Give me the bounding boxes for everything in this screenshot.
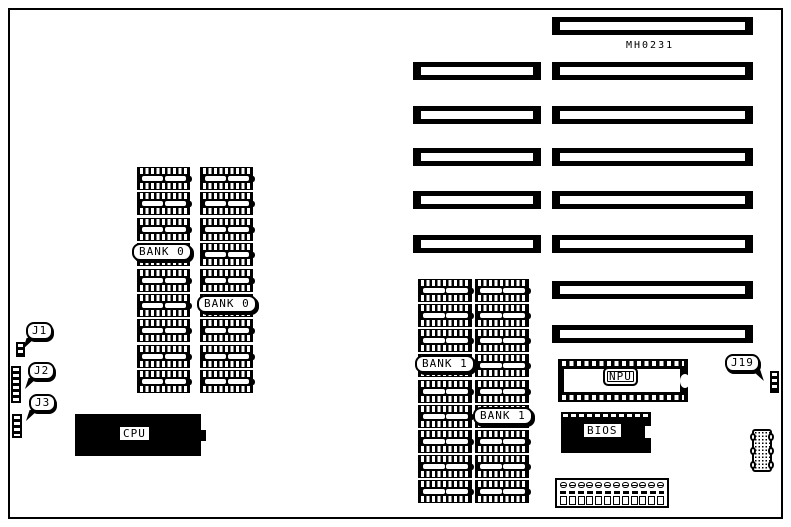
power-pin: [648, 496, 655, 505]
bios-label: BIOS: [583, 423, 622, 438]
dram-chip: [418, 480, 472, 503]
power-pin: [631, 496, 638, 505]
chip-label-bar: [228, 379, 249, 384]
chip-pins: [140, 346, 187, 352]
npu-socket-notch: [680, 374, 690, 388]
chip-label-bar: [205, 278, 226, 283]
chip-notch: [470, 389, 474, 395]
chip-label-bar: [503, 313, 525, 318]
chip-label-bar: [423, 439, 445, 444]
dram-chip: [200, 319, 253, 342]
chip-notch: [527, 288, 531, 294]
chip-label-bar: [503, 338, 525, 343]
power-pin: [586, 482, 593, 488]
chip-label-bar: [423, 414, 445, 419]
chip-notch: [470, 489, 474, 495]
jumper-label-j3: J3: [35, 396, 50, 409]
chip-label-bar: [228, 328, 249, 333]
chip-pins: [140, 310, 187, 316]
power-pin-row-top: [560, 482, 664, 488]
dram-chip: [137, 345, 190, 368]
dram-chip: [200, 167, 253, 190]
chip-pins: [478, 456, 526, 462]
chip-pins: [421, 305, 469, 311]
chip-notch: [188, 303, 192, 309]
power-pin: [569, 482, 576, 488]
cpu-pin1-tab: [200, 430, 206, 441]
dram-chip: [137, 319, 190, 342]
chip-pins: [140, 183, 187, 189]
chip-label-bar: [205, 227, 226, 232]
chip-label-bar: [205, 328, 226, 333]
isa-slot: [552, 281, 753, 299]
isa-slot: [413, 235, 541, 253]
chip-notch: [251, 354, 255, 360]
chip-pins: [203, 335, 250, 341]
chip-pins: [478, 496, 526, 502]
memory-bank0-column-1: [137, 167, 190, 393]
power-pin: [613, 482, 620, 488]
chip-label-bar: [480, 489, 502, 494]
dram-chip: [475, 354, 529, 377]
chip-label-bar: [503, 363, 525, 368]
chip-label-bar: [503, 389, 525, 394]
jumper-block-j2: [11, 366, 21, 403]
cpu-block: CPU: [75, 414, 201, 456]
chip-pins: [478, 431, 526, 437]
dram-chip: [475, 380, 529, 403]
chip-label-bar: [142, 354, 163, 359]
chip-label-bar: [446, 338, 468, 343]
jumper-block-j1: [16, 342, 25, 357]
chip-label-bar: [446, 489, 468, 494]
chip-label-bar: [205, 354, 226, 359]
chip-pins: [203, 361, 250, 367]
npu-socket: NPU: [558, 359, 688, 402]
chip-notch: [251, 176, 255, 182]
power-pin: [578, 496, 585, 505]
pad-bump: [750, 433, 756, 441]
chip-label-bar: [228, 227, 249, 232]
dram-chip: [137, 370, 190, 393]
chip-pins: [421, 280, 469, 286]
chip-pins: [140, 371, 187, 377]
chip-label-bar: [446, 414, 468, 419]
jumper-callout-j3: J3: [29, 394, 56, 412]
chip-pins: [203, 219, 250, 225]
chip-label-bar: [423, 288, 445, 293]
speaker-pad: [752, 429, 772, 472]
chip-label-bar: [165, 227, 186, 232]
chip-label-bar: [142, 278, 163, 283]
chip-notch: [188, 176, 192, 182]
chip-pins: [478, 280, 526, 286]
chip-pins: [421, 496, 469, 502]
chip-label-bar: [423, 313, 445, 318]
chip-pins: [478, 381, 526, 387]
dram-chip: [418, 455, 472, 478]
dram-chip: [475, 329, 529, 352]
chip-pins: [140, 320, 187, 326]
slot-contact-strip: [421, 196, 533, 204]
chip-label-bar: [480, 363, 502, 368]
power-pin: [560, 482, 567, 488]
isa-slot: [552, 235, 753, 253]
pad-bump: [750, 447, 756, 455]
dram-chip: [418, 279, 472, 302]
chip-pins: [421, 421, 469, 427]
chip-pins: [140, 295, 187, 301]
slot-contact-strip: [421, 153, 533, 161]
isa-slot: [413, 106, 541, 124]
pad-bump: [768, 461, 774, 469]
chip-pins: [203, 371, 250, 377]
chip-pins: [140, 168, 187, 174]
bank0-label: BANK 0: [197, 295, 257, 313]
chip-pins: [203, 168, 250, 174]
chip-pins: [203, 208, 250, 214]
dram-chip: [418, 380, 472, 403]
chip-label-bar: [165, 354, 186, 359]
pad-bump: [768, 433, 774, 441]
bank0-label: BANK 0: [132, 243, 192, 261]
power-pin: [586, 496, 593, 505]
chip-notch: [251, 379, 255, 385]
chip-pins: [203, 244, 250, 250]
power-pin: [578, 482, 585, 488]
chip-label-bar: [446, 389, 468, 394]
dram-chip: [418, 430, 472, 453]
dram-chip: [418, 304, 472, 327]
isa-slot: [552, 62, 753, 80]
power-pin: [604, 482, 611, 488]
chip-notch: [188, 278, 192, 284]
chip-label-bar: [503, 288, 525, 293]
isa-slot: [413, 62, 541, 80]
power-pin: [631, 482, 638, 488]
chip-notch: [527, 489, 531, 495]
bank1-label: BANK 1: [415, 355, 475, 373]
chip-label-bar: [142, 176, 163, 181]
chip-pins: [421, 381, 469, 387]
pad-bump: [750, 461, 756, 469]
slot-contact-strip: [560, 67, 745, 75]
slot-contact-strip: [560, 196, 745, 204]
chip-pins: [140, 234, 187, 240]
power-pin: [648, 482, 655, 488]
power-pin-row-bottom: [560, 496, 664, 505]
jumper-label-j2: J2: [34, 364, 49, 377]
chip-label-bar: [142, 379, 163, 384]
chip-pins: [203, 259, 250, 265]
chip-notch: [251, 227, 255, 233]
memory-bank0-column-2: [200, 167, 253, 393]
chip-label-bar: [503, 489, 525, 494]
slot-contact-strip: [421, 67, 533, 75]
chip-notch: [188, 354, 192, 360]
dram-chip: [137, 218, 190, 241]
cpu-label: CPU: [119, 426, 150, 441]
npu-socket-pins: [562, 361, 684, 366]
chip-label-bar: [165, 176, 186, 181]
chip-pins: [203, 386, 250, 392]
chip-label-bar: [205, 379, 226, 384]
chip-pins: [421, 295, 469, 301]
power-pin: [595, 482, 602, 488]
dram-chip: [200, 370, 253, 393]
dram-chip: [418, 329, 472, 352]
bank1-label: BANK 1: [473, 407, 533, 425]
chip-pins: [478, 471, 526, 477]
chip-label-bar: [480, 313, 502, 318]
dram-chip: [200, 192, 253, 215]
chip-label-bar: [423, 338, 445, 343]
chip-pins: [478, 345, 526, 351]
chip-pins: [421, 481, 469, 487]
jumper-callout-j2: J2: [28, 362, 55, 380]
chip-label-bar: [446, 464, 468, 469]
chip-pins: [203, 270, 250, 276]
motherboard-diagram: MH0231 BANK 0 BANK 0 BANK 1 BANK 1 CPU N…: [0, 0, 791, 527]
chip-label-bar: [423, 389, 445, 394]
chip-label-bar: [228, 176, 249, 181]
isa-slot: [552, 17, 753, 35]
chip-notch: [527, 439, 531, 445]
chip-label-bar: [446, 313, 468, 318]
chip-label-bar: [423, 464, 445, 469]
chip-label-bar: [205, 252, 226, 257]
bios-notch: [645, 426, 652, 438]
power-pin: [657, 482, 664, 488]
chip-notch: [470, 464, 474, 470]
chip-pins: [421, 471, 469, 477]
chip-notch: [251, 278, 255, 284]
dram-chip: [418, 405, 472, 428]
power-pin: [639, 496, 646, 505]
dram-chip: [200, 243, 253, 266]
power-pin: [639, 482, 646, 488]
board-marking: MH0231: [626, 40, 674, 51]
chip-label-bar: [228, 201, 249, 206]
isa-slot: [552, 325, 753, 343]
chip-label-bar: [446, 439, 468, 444]
chip-label-bar: [165, 278, 186, 283]
chip-pins: [478, 396, 526, 402]
chip-label-bar: [480, 389, 502, 394]
jumper-callout-j19: J19: [725, 354, 760, 372]
memory-bank1-column-1: [418, 279, 472, 503]
dram-chip: [475, 455, 529, 478]
chip-label-bar: [205, 201, 226, 206]
jumper-callout-j1: J1: [26, 322, 53, 340]
slot-contact-strip: [421, 240, 533, 248]
chip-label-bar: [228, 252, 249, 257]
chip-pins: [421, 320, 469, 326]
power-connector: [555, 478, 669, 508]
chip-label-bar: [446, 288, 468, 293]
chip-pins: [478, 481, 526, 487]
dram-chip: [200, 269, 253, 292]
chip-pins: [140, 219, 187, 225]
chip-pins: [140, 285, 187, 291]
chip-label-bar: [480, 464, 502, 469]
chip-label-bar: [165, 379, 186, 384]
chip-label-bar: [423, 489, 445, 494]
chip-label-bar: [205, 176, 226, 181]
chip-pins: [421, 406, 469, 412]
dram-chip: [475, 279, 529, 302]
chip-pins: [203, 193, 250, 199]
chip-pins: [478, 305, 526, 311]
jumper-label-j19: J19: [731, 356, 754, 369]
isa-slot: [552, 148, 753, 166]
power-pin-dashes: [560, 491, 664, 494]
chip-pins: [478, 370, 526, 376]
slot-contact-strip: [560, 240, 745, 248]
dram-chip: [200, 218, 253, 241]
chip-notch: [188, 379, 192, 385]
chip-label-bar: [480, 439, 502, 444]
pad-bump: [768, 447, 774, 455]
chip-pins: [203, 285, 250, 291]
chip-pins: [140, 193, 187, 199]
dram-chip: [475, 304, 529, 327]
slot-contact-strip: [560, 286, 745, 294]
chip-pins: [203, 183, 250, 189]
chip-pins: [421, 446, 469, 452]
power-pin: [595, 496, 602, 505]
chip-pins: [421, 345, 469, 351]
power-pin: [622, 496, 629, 505]
chip-pins: [140, 361, 187, 367]
chip-notch: [188, 227, 192, 233]
power-pin: [604, 496, 611, 505]
slot-contact-strip: [560, 111, 745, 119]
chip-pins: [478, 330, 526, 336]
power-pin: [569, 496, 576, 505]
dram-chip: [475, 430, 529, 453]
chip-pins: [203, 234, 250, 240]
chip-label-bar: [142, 328, 163, 333]
chip-pins: [140, 386, 187, 392]
chip-pins: [478, 355, 526, 361]
chip-pins: [421, 330, 469, 336]
isa-slot: [552, 106, 753, 124]
chip-pins: [203, 346, 250, 352]
chip-label-bar: [142, 303, 163, 308]
chip-label-bar: [480, 288, 502, 293]
chip-notch: [470, 288, 474, 294]
power-pin: [613, 496, 620, 505]
slot-contact-strip: [560, 330, 745, 338]
npu-socket-pins: [562, 395, 684, 400]
slot-contact-strip: [560, 153, 745, 161]
chip-label-bar: [228, 354, 249, 359]
isa-slot: [413, 148, 541, 166]
chip-pins: [203, 320, 250, 326]
jumper-block-j19: [770, 371, 779, 393]
chip-label-bar: [503, 464, 525, 469]
chip-pins: [140, 270, 187, 276]
dram-chip: [200, 345, 253, 368]
power-pin: [622, 482, 629, 488]
chip-label-bar: [503, 439, 525, 444]
isa-slot: [552, 191, 753, 209]
chip-pins: [140, 208, 187, 214]
chip-pins: [140, 335, 187, 341]
chip-pins: [478, 446, 526, 452]
bios-chip: BIOS: [561, 412, 651, 453]
chip-pins: [478, 295, 526, 301]
dram-chip: [137, 269, 190, 292]
chip-pins: [421, 456, 469, 462]
chip-pins: [421, 431, 469, 437]
chip-label-bar: [165, 303, 186, 308]
dram-chip: [475, 480, 529, 503]
bios-pin-row: [563, 414, 649, 417]
chip-label-bar: [228, 278, 249, 283]
chip-pins: [421, 396, 469, 402]
dram-chip: [137, 167, 190, 190]
power-pin: [657, 496, 664, 505]
chip-label-bar: [165, 201, 186, 206]
jumper-label-j1: J1: [32, 324, 47, 337]
npu-label: NPU: [603, 367, 638, 386]
memory-bank1-column-2: [475, 279, 529, 503]
slot-contact-strip: [560, 22, 745, 30]
chip-notch: [527, 464, 531, 470]
chip-label-bar: [165, 328, 186, 333]
dram-chip: [137, 192, 190, 215]
slot-contact-strip: [421, 111, 533, 119]
chip-label-bar: [480, 338, 502, 343]
power-pin: [560, 496, 567, 505]
chip-notch: [470, 439, 474, 445]
chip-pins: [478, 320, 526, 326]
chip-label-bar: [142, 201, 163, 206]
isa-slot: [413, 191, 541, 209]
jumper-block-j3: [12, 414, 22, 438]
chip-label-bar: [142, 227, 163, 232]
chip-notch: [527, 389, 531, 395]
dram-chip: [137, 294, 190, 317]
